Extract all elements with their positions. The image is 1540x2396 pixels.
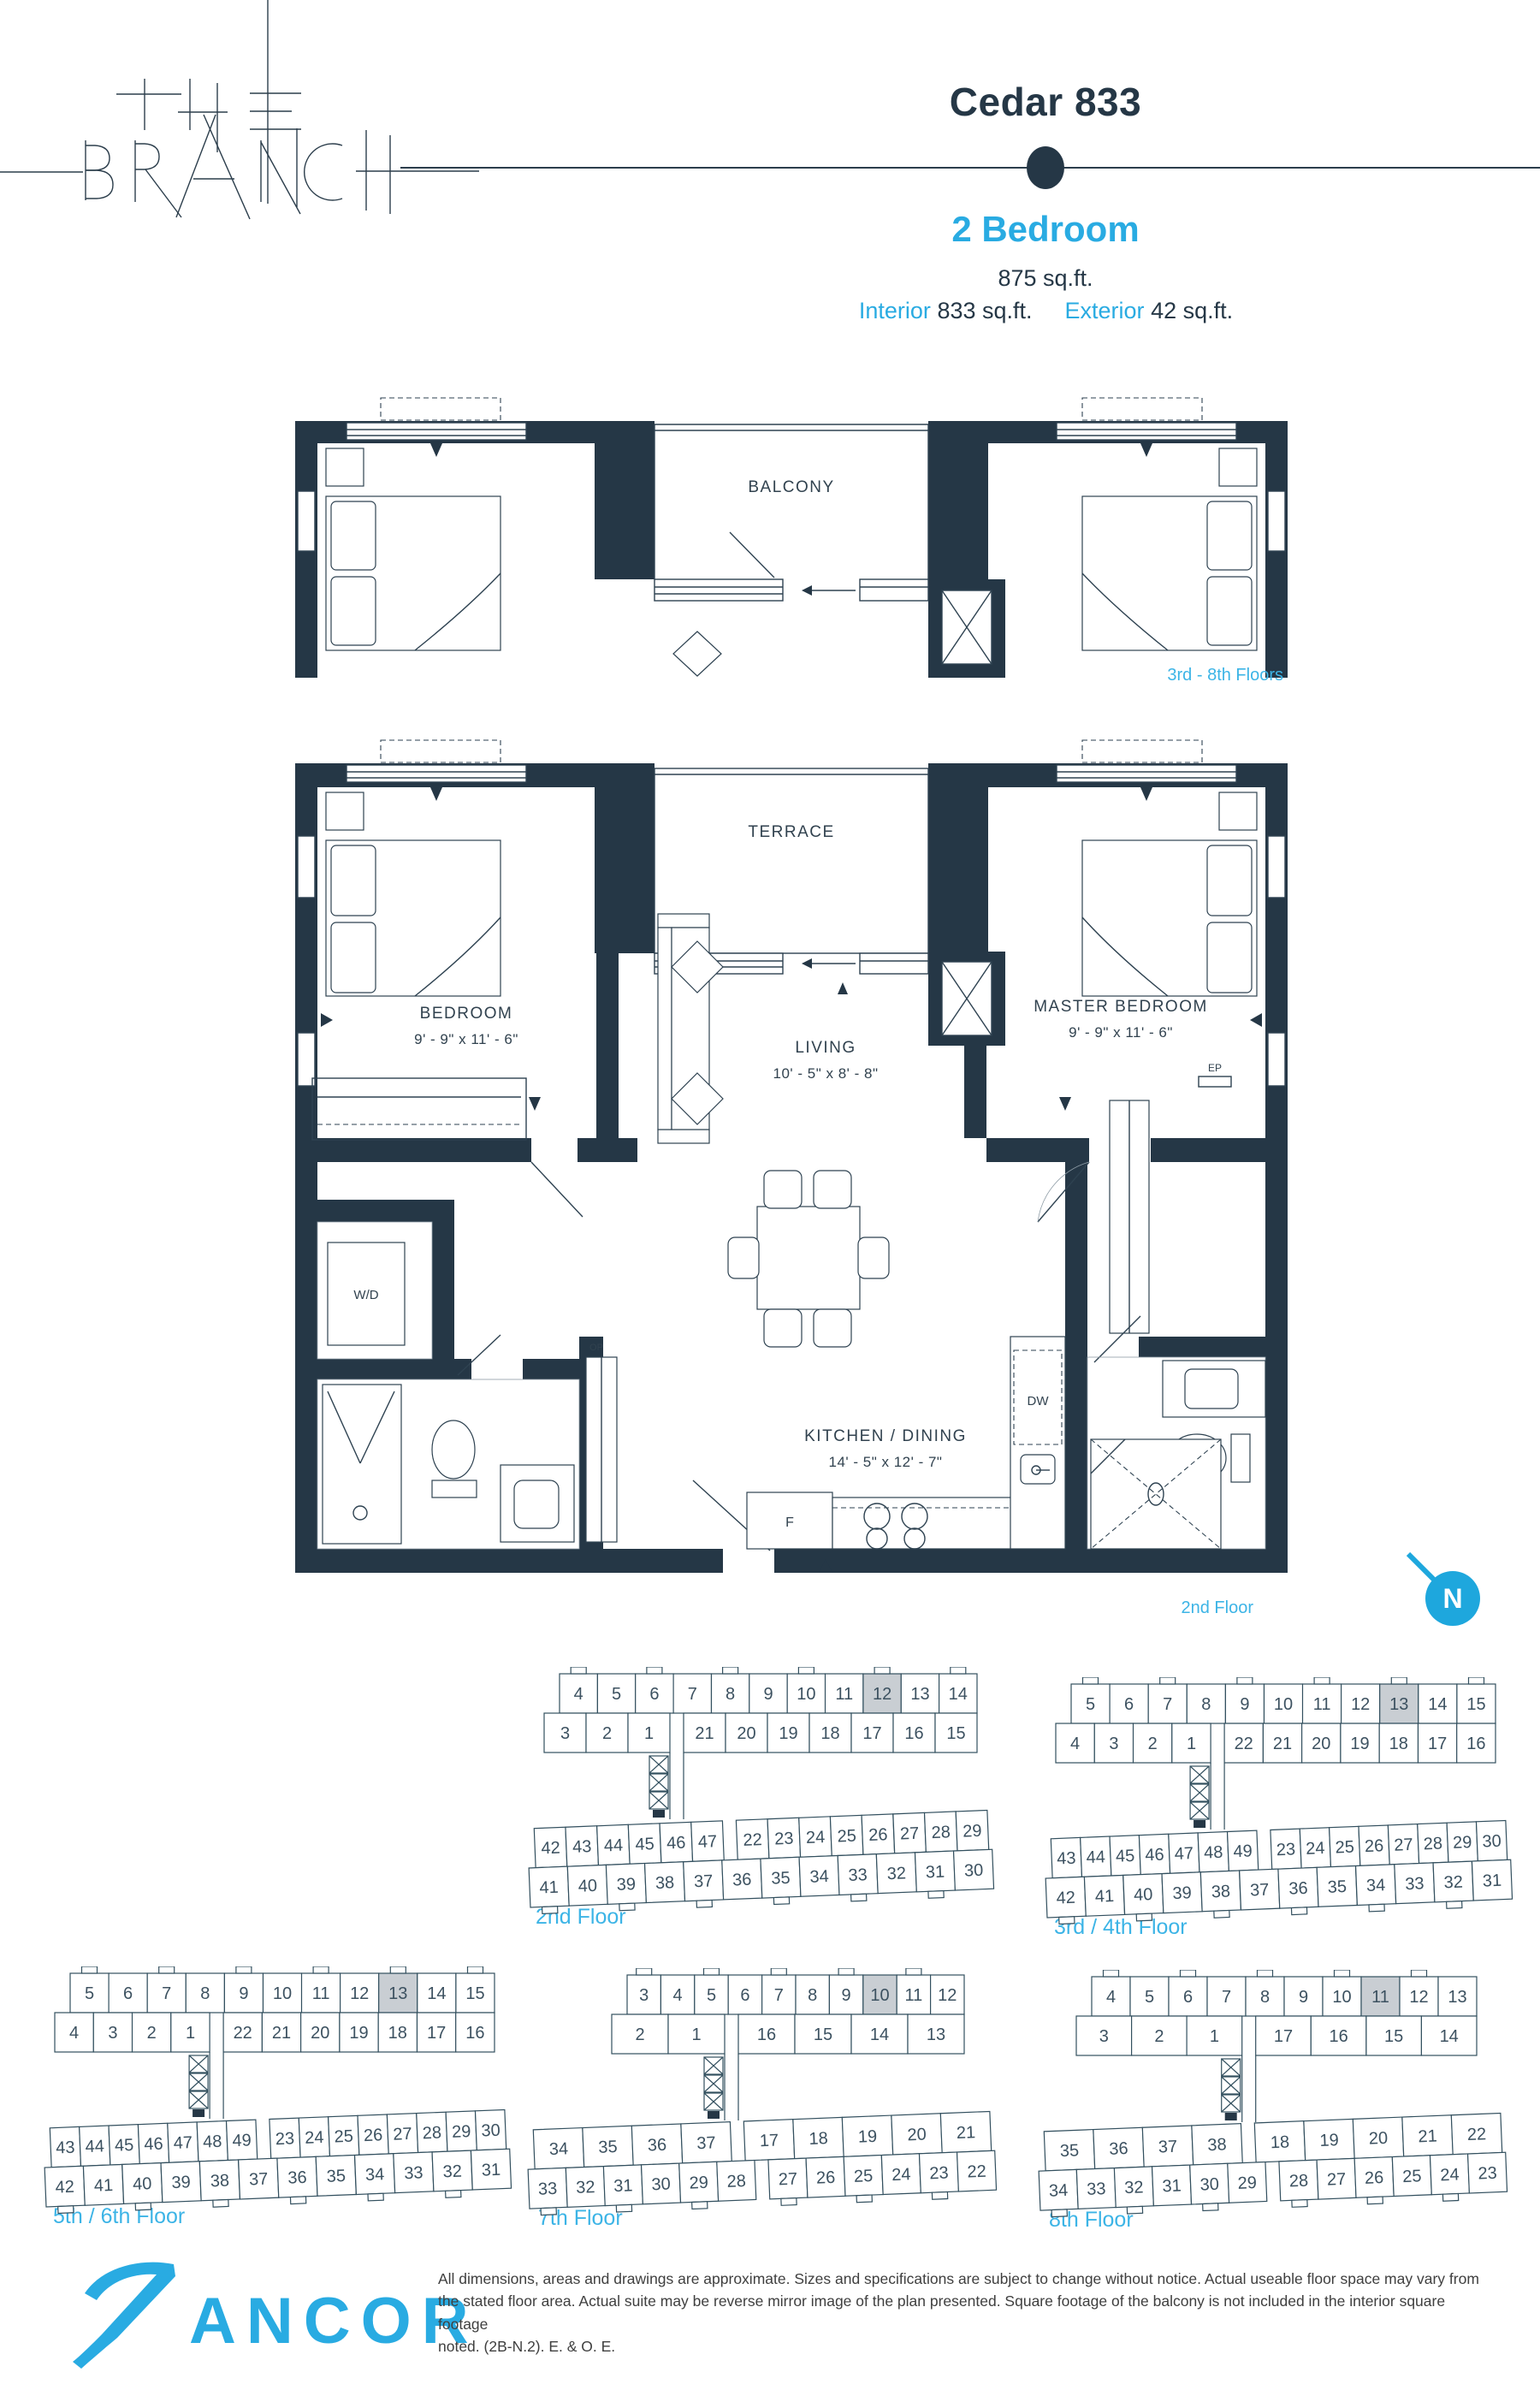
keyplan-unit-number: 23	[1478, 2164, 1497, 2184]
keyplan-balcony-tab	[290, 2197, 305, 2204]
keyplan-unit-number: 5	[85, 1984, 94, 2003]
keyplan-balcony-tab	[1335, 1970, 1350, 1977]
keyplan-unit-number: 37	[694, 1871, 714, 1891]
keyplan-unit-number: 34	[365, 2165, 385, 2185]
keyplan-unit-number: 23	[929, 2163, 949, 2183]
keyplan-unit-number: 4	[69, 2024, 79, 2043]
keyplan-unit-number: 6	[1183, 1988, 1193, 2007]
keyplan-unit-number: 45	[635, 1835, 654, 1854]
keyplan-unit-number: 42	[541, 1839, 560, 1859]
keyplan-unit-number: 43	[572, 1837, 592, 1857]
op-label: OP	[589, 1343, 603, 1353]
keyplan-unit-number: 34	[548, 2139, 568, 2159]
disclaimer-line: the stated floor area. Actual suite may …	[438, 2290, 1499, 2335]
keyplan-unit-number: 26	[1365, 2168, 1384, 2188]
washer-dryer-label: W/D	[353, 1288, 378, 1302]
keyplan-unit-number: 32	[442, 2162, 462, 2182]
keyplan-unit-number: 7	[1163, 1695, 1172, 1714]
keyplan-unit-number: 10	[273, 1984, 292, 2003]
keyplan-unit-number: 32	[1124, 2178, 1144, 2197]
keyplan-unit-number: 16	[757, 2025, 776, 2044]
main-plan-floor-label: 2nd Floor	[1069, 1598, 1253, 1618]
keyplan-balcony-tab	[135, 2203, 151, 2210]
keyplan-unit-number: 38	[1211, 1882, 1230, 1901]
keyplan-unit-number: 26	[364, 2126, 383, 2145]
keyplan-balcony-tab	[446, 2191, 461, 2198]
keyplan-unit-number: 41	[1094, 1887, 1114, 1907]
total-area: 875 sq.ft.	[874, 265, 1217, 292]
keyplan-balcony-tab	[542, 1907, 558, 1914]
keyplan-unit-number: 13	[388, 1984, 407, 2003]
keyplan-balcony-tab	[951, 1667, 966, 1674]
balcony-label: BALCONY	[748, 478, 834, 496]
keyplan-unit-number: 33	[538, 2180, 558, 2199]
master-bedroom-label: MASTER BEDROOM	[1034, 998, 1208, 1016]
keyplan-unit-number: 9	[1299, 1988, 1308, 2007]
keyplan-unit-number: 6	[1124, 1695, 1134, 1714]
keyplan-unit-number: 40	[133, 2174, 152, 2194]
keyplan-unit-number: 33	[1405, 1874, 1424, 1894]
keyplan-unit-number: 46	[1145, 1846, 1164, 1865]
keyplan-7th-floor: 7th Floor 345678910111221161514133435363…	[526, 1968, 1005, 2233]
bedroom-dims: 9' - 9" x 11' - 6"	[414, 1031, 518, 1047]
keyplan-unit-number: 17	[427, 2024, 446, 2043]
keyplan-unit-number: 15	[1384, 2027, 1403, 2046]
keyplan-unit-number: 1	[186, 2024, 195, 2043]
keyplan-unit-number: 5	[612, 1685, 621, 1704]
keyplan-unit-number: 47	[697, 1832, 717, 1852]
keyplan-unit-number: 8	[200, 1984, 210, 2003]
keyplan-unit-number: 45	[115, 2136, 134, 2156]
keyplan-balcony-tab	[213, 2199, 228, 2207]
keyplan-balcony-tab	[781, 2198, 797, 2206]
interior-label: Interior	[859, 298, 931, 323]
keyplan-unit-number: 2	[1154, 2027, 1164, 2046]
keyplan-unit-number: 25	[837, 1827, 856, 1847]
keyplan-unit-number: 4	[673, 1986, 683, 2005]
keyplan-unit-number: 22	[1466, 2125, 1486, 2144]
keyplan-balcony-tab	[874, 1667, 890, 1674]
keyplan-unit-number: 25	[1335, 1838, 1354, 1858]
keyplan-balcony-tab	[1059, 1917, 1075, 1925]
keyplan-balcony-tab	[1369, 1904, 1384, 1912]
keyplan-unit-number: 6	[123, 1984, 133, 2003]
keyplan-unit-number: 39	[1172, 1883, 1192, 1903]
keyplan-unit-number: 7	[774, 1986, 784, 2005]
keyplan-unit-number: 2	[1148, 1735, 1158, 1753]
keyplan-unit-number: 23	[275, 2129, 294, 2149]
keyplan-unit-number: 44	[603, 1836, 623, 1856]
keyplan-balcony-tab	[1160, 1677, 1176, 1684]
keyplan-unit-number: 21	[956, 2123, 975, 2143]
keyplan-unit-number: 18	[808, 2129, 828, 2149]
keyplan-unit-number: 35	[326, 2167, 346, 2186]
keyplan-unit-number: 37	[696, 2133, 716, 2153]
keyplan-unit-number: 17	[862, 1724, 881, 1743]
keyplan-unit-number: 16	[1329, 2027, 1347, 2046]
keyplan-balcony-tab	[773, 1897, 789, 1905]
keyplan-balcony-tab	[159, 1966, 175, 1973]
keyplan-unit-number: 31	[925, 1863, 945, 1883]
keyplan-unit-number: 6	[649, 1685, 659, 1704]
keyplan-balcony-tab	[313, 1966, 329, 1973]
keyplan-unit-number: 23	[774, 1830, 794, 1849]
keyplan-balcony-tab	[928, 1891, 944, 1899]
keyplan-unit-number: 1	[691, 2025, 701, 2044]
keyplan-unit-number: 15	[814, 2025, 832, 2044]
keyplan-balcony-tab	[468, 1966, 483, 1973]
keyplan-unit-number: 42	[55, 2178, 74, 2197]
keyplan-unit-number: 44	[85, 2137, 104, 2156]
keyplan-unit-number: 15	[1466, 1695, 1485, 1714]
keyplan-unit-number: 24	[806, 1828, 826, 1847]
keyplan-unit-number: 33	[848, 1865, 868, 1885]
keyplan-unit-number: 28	[931, 1823, 951, 1842]
keyplan-unit-number: 24	[305, 2128, 324, 2148]
keyplan-balcony-tab	[1291, 1907, 1306, 1915]
keyplan-balcony-tab	[696, 1900, 712, 1907]
keyplan-8th-floor: 8th Floor 456789101112133211716151435363…	[1037, 1970, 1516, 2235]
interior-value: 833 sq.ft.	[937, 298, 1032, 323]
keyplan-unit-number: 24	[891, 2165, 911, 2185]
keyplan-unit-number: 17	[1428, 1735, 1447, 1753]
keyplan-unit-number: 10	[1332, 1988, 1351, 2007]
keyplan-unit-number: 14	[1440, 2027, 1459, 2046]
header-rule-dot	[1027, 146, 1064, 189]
keyplan-unit-number: 9	[842, 1986, 851, 2005]
keyplan-stair-marker	[192, 2109, 204, 2117]
keyplan-stair-marker	[708, 2111, 720, 2119]
keyplan-unit-number: 44	[1086, 1847, 1105, 1867]
exterior-label: Exterior	[1065, 298, 1145, 323]
keyplan-unit-number: 12	[1351, 1695, 1370, 1714]
keyplan-unit-number: 1	[1210, 2027, 1219, 2046]
keyplan-unit-number: 29	[689, 2174, 708, 2193]
keyplan-unit-number: 20	[1368, 2129, 1388, 2149]
exterior-value: 42 sq.ft.	[1151, 298, 1233, 323]
keyplan-unit-number: 23	[1276, 1840, 1295, 1859]
keyplan-balcony-tab	[58, 2206, 74, 2214]
keyplan-unit-number: 2	[635, 2025, 644, 2044]
keyplan-balcony-tab	[1083, 1677, 1099, 1684]
keyplan-balcony-tab	[856, 2195, 872, 2203]
keyplan-unit-number: 7	[162, 1984, 171, 2003]
keyplan-unit-number: 14	[870, 2025, 889, 2044]
keyplan-unit-number: 49	[1233, 1841, 1253, 1861]
zancor-logo: ANCOR	[73, 2256, 475, 2384]
keyplan-unit-number: 49	[232, 2131, 252, 2150]
keyplan-unit-number: 35	[771, 1869, 791, 1889]
keyplan-unit-number: 34	[1049, 2181, 1069, 2201]
keyplan-2nd-floor: 2nd Floor 456789101112131432121201918171…	[524, 1667, 1003, 1932]
keyplan-unit-number: 4	[1106, 1988, 1116, 2007]
keyplan-unit-number: 48	[1204, 1843, 1223, 1863]
keyplan-balcony-tab	[1237, 1677, 1253, 1684]
keyplan-balcony-tab	[906, 1968, 921, 1975]
keyplan-unit-number: 36	[1288, 1879, 1308, 1899]
keyplan-unit-number: 15	[946, 1724, 965, 1743]
keyplan-balcony-tab	[851, 1894, 867, 1901]
keyplan-unit-number: 8	[1201, 1695, 1211, 1714]
keyplan-unit-number: 35	[598, 2138, 618, 2157]
keyplan-unit-number: 19	[779, 1724, 797, 1743]
keyplan-unit-number: 27	[900, 1824, 920, 1844]
keyplan-unit-number: 31	[1162, 2176, 1182, 2196]
keyplan-unit-number: 30	[964, 1861, 984, 1881]
keyplan-unit-number: 20	[737, 1724, 755, 1743]
keyplan-unit-number: 34	[1366, 1876, 1386, 1895]
keyplan-unit-number: 1	[1187, 1735, 1196, 1753]
keyplan-unit-number: 7	[688, 1685, 697, 1704]
keyplan-unit-number: 26	[1365, 1836, 1384, 1856]
keyplan-unit-number: 47	[1174, 1844, 1193, 1864]
keyplan-unit-number: 25	[854, 2167, 874, 2186]
keyplan-unit-number: 19	[349, 2024, 368, 2043]
keyplan-unit-number: 21	[272, 2024, 291, 2043]
keyplan-unit-number: 8	[808, 1986, 817, 2005]
keyplan-unit-number: 21	[695, 1724, 714, 1743]
keyplan-unit-number: 28	[1288, 2172, 1308, 2191]
keyplan-unit-number: 29	[962, 1822, 982, 1841]
keyplan-unit-number: 29	[1237, 2174, 1257, 2193]
keyplan-stair-marker	[653, 1810, 665, 1818]
keyplan-balcony-tab	[1314, 1677, 1330, 1684]
keyplan-balcony-tab	[619, 1903, 635, 1911]
keyplan-unit-number: 5	[1145, 1988, 1154, 2007]
keyplan-unit-number: 26	[816, 2168, 836, 2188]
keyplan-unit-number: 33	[404, 2163, 423, 2183]
keyplan-unit-number: 4	[1070, 1735, 1080, 1753]
keyplan-unit-number: 46	[144, 2135, 163, 2155]
keyplan-unit-number: 12	[873, 1685, 891, 1704]
keyplan-unit-number: 22	[234, 2024, 252, 2043]
keyplan-balcony-tab	[771, 1968, 786, 1975]
keyplan-unit-number: 17	[1274, 2027, 1293, 2046]
keyplan-balcony-tab	[1258, 1970, 1273, 1977]
keyplan-balcony-tab	[1367, 2197, 1383, 2204]
keyplan-balcony-tab	[616, 2204, 631, 2212]
keyplan-balcony-tab	[571, 1667, 586, 1674]
fridge-label: F	[785, 1515, 794, 1530]
keyplan-unit-number: 10	[870, 1986, 889, 2005]
keyplan-balcony-tab	[704, 1968, 720, 1975]
keyplan-unit-number: 48	[203, 2132, 222, 2152]
keyplan-unit-number: 19	[1350, 1735, 1369, 1753]
keyplan-unit-number: 32	[886, 1864, 906, 1883]
keyplan-unit-number: 22	[743, 1830, 762, 1850]
brochure-page: Cedar 833 2 Bedroom 875 sq.ft. Interior …	[0, 0, 1540, 2396]
keyplan-balcony-tab	[1447, 1901, 1462, 1909]
zancor-wordmark: ANCOR	[189, 2285, 475, 2357]
keyplan-balcony-tab	[236, 1966, 252, 1973]
keyplan-unit-number: 8	[1260, 1988, 1270, 2007]
keyplan-unit-number: 35	[1059, 2141, 1079, 2161]
keyplan-unit-number: 7	[1222, 1988, 1231, 2007]
keyplan-unit-number: 35	[1327, 1877, 1347, 1897]
keyplan-unit-number: 9	[763, 1685, 773, 1704]
keyplan-unit-number: 34	[809, 1867, 829, 1887]
main-floor-plan: TERRACE BEDROOM 9' - 9" x 11' - 6" MASTE…	[295, 738, 1288, 1593]
keyplan-balcony-tab	[838, 1968, 854, 1975]
keyplan-unit-number: 38	[655, 1873, 675, 1893]
keyplan-unit-number: 47	[173, 2133, 192, 2153]
keyplan-unit-number: 20	[1312, 1735, 1330, 1753]
keyplan-unit-number: 12	[350, 1984, 369, 2003]
keyplan-unit-number: 20	[311, 2024, 329, 2043]
keyplan-unit-number: 40	[1134, 1885, 1153, 1905]
upper-floor-plan: BALCONY	[295, 395, 1288, 678]
unit-type: 2 Bedroom	[874, 209, 1217, 250]
keyplan-balcony-tab	[692, 2202, 708, 2209]
keyplan-unit-number: 17	[759, 2131, 779, 2150]
keyplan-unit-number: 11	[905, 1986, 923, 2005]
keyplan-unit-number: 37	[1250, 1881, 1270, 1901]
keyplan-unit-number: 9	[1240, 1695, 1249, 1714]
disclaimer-text: All dimensions, areas and drawings are a…	[438, 2268, 1499, 2357]
keyplan-unit-number: 14	[1428, 1695, 1447, 1714]
keyplan-unit-number: 19	[1319, 2131, 1339, 2150]
keyplan-balcony-tab	[1051, 2209, 1067, 2217]
keyplan-unit-number: 40	[577, 1877, 597, 1896]
terrace-label: TERRACE	[748, 823, 834, 841]
keyplan-unit-number: 42	[1056, 1889, 1075, 1908]
keyplan-balcony-tab	[1214, 1910, 1229, 1918]
keyplan-balcony-tab	[647, 1667, 662, 1674]
dishwasher-label: DW	[1028, 1394, 1050, 1409]
keyplan-unit-number: 8	[726, 1685, 735, 1704]
keyplan-3rd-4th-floor: 3rd / 4th Floor 567891011121314154321222…	[1042, 1677, 1521, 1942]
keyplan-unit-number: 36	[647, 2136, 666, 2156]
living-label: LIVING	[795, 1039, 856, 1057]
keyplan-unit-number: 14	[427, 1984, 446, 2003]
keyplan-unit-number: 18	[388, 2024, 407, 2043]
keyplan-unit-number: 28	[1423, 1834, 1442, 1853]
keyplan-unit-number: 27	[778, 2170, 797, 2190]
keyplan-unit-number: 38	[210, 2171, 229, 2191]
keyplan-unit-number: 26	[868, 1825, 888, 1845]
keyplan-unit-number: 11	[312, 1984, 330, 2003]
north-letter: N	[1442, 1583, 1462, 1614]
keyplan-unit-number: 24	[1306, 1839, 1325, 1859]
keyplan-unit-number: 32	[576, 2178, 595, 2197]
keyplan-unit-number: 30	[1482, 1832, 1501, 1852]
keyplan-unit-number: 6	[740, 1986, 749, 2005]
keyplan-unit-number: 2	[147, 2024, 157, 2043]
keyplan-balcony-tab	[723, 1667, 738, 1674]
master-bedroom-dims: 9' - 9" x 11' - 6"	[1069, 1024, 1173, 1041]
keyplan-balcony-tab	[390, 1966, 406, 1973]
disclaimer-line: All dimensions, areas and drawings are a…	[438, 2268, 1499, 2290]
keyplan-unit-number: 27	[1327, 2170, 1347, 2190]
keyplan-balcony-tab	[1469, 1677, 1484, 1684]
keyplan-unit-number: 39	[616, 1875, 636, 1895]
keyplan-unit-number: 21	[1418, 2126, 1437, 2146]
keyplan-unit-number: 22	[1235, 1735, 1253, 1753]
keyplan-unit-number: 5	[707, 1986, 716, 2005]
keyplan-unit-number: 43	[1057, 1849, 1076, 1869]
keyplan-unit-number: 14	[949, 1685, 968, 1704]
keyplan-balcony-tab	[1127, 2206, 1142, 2214]
keyplan-balcony-tab	[798, 1667, 814, 1674]
keyplan-unit-number: 5	[1086, 1695, 1095, 1714]
disclaimer-line: noted. (2B-N.2). E. & O. E.	[438, 2335, 1499, 2357]
keyplan-balcony-tab	[82, 1966, 98, 1973]
keyplan-unit-number: 30	[651, 2174, 671, 2194]
keyplan-unit-number: 22	[967, 2162, 986, 2182]
keyplan-unit-number: 29	[1453, 1833, 1472, 1853]
keyplan-unit-number: 28	[422, 2123, 441, 2143]
keyplan-unit-number: 16	[904, 1724, 923, 1743]
keyplan-unit-number: 10	[797, 1685, 815, 1704]
area-breakdown: Interior 833 sq.ft. Exterior 42 sq.ft.	[817, 298, 1275, 324]
keyplan-unit-number: 41	[539, 1878, 559, 1898]
keyplan-unit-number: 15	[465, 1984, 484, 2003]
keyplan-unit-number: 12	[938, 1986, 957, 2005]
keyplan-unit-number: 10	[1274, 1695, 1293, 1714]
keyplan-unit-number: 30	[1199, 2175, 1219, 2195]
keyplan-unit-number: 33	[1087, 2180, 1106, 2199]
upper-plan-floors-label: 3rd - 8th Floors	[1069, 666, 1283, 685]
keyplan-stair-marker	[1225, 2113, 1237, 2120]
keyplan-unit-number: 18	[1270, 2132, 1289, 2152]
keyplan-unit-number: 25	[1402, 2167, 1422, 2186]
page-title: Cedar 833	[874, 79, 1217, 125]
keyplan-5th-6th-floor: 5th / 6th Floor 567891011121314154321222…	[41, 1966, 520, 2232]
keyplan-unit-number: 27	[393, 2125, 412, 2144]
keyplan-unit-number: 39	[171, 2173, 191, 2192]
keyplan-unit-number: 18	[820, 1724, 839, 1743]
keyplan-unit-number: 31	[1482, 1871, 1501, 1891]
keyplan-unit-number: 43	[56, 2138, 75, 2158]
keyplan-unit-number: 20	[907, 2125, 927, 2144]
the-branch-logo	[0, 0, 479, 222]
kitchen-label: KITCHEN / DINING	[804, 1427, 967, 1445]
keyplan-unit-number: 11	[1313, 1695, 1331, 1714]
keyplan-unit-number: 13	[927, 2025, 945, 2044]
keyplan-unit-number: 37	[1158, 2138, 1177, 2157]
exterior-area: Exterior 42 sq.ft.	[1065, 298, 1234, 324]
keyplan-balcony-tab	[1181, 1970, 1196, 1977]
keyplan-unit-number: 3	[639, 1986, 649, 2005]
keyplan-unit-number: 13	[1389, 1695, 1408, 1714]
bedroom-label: BEDROOM	[420, 1005, 513, 1023]
living-dims: 10' - 5" x 8' - 8"	[773, 1065, 879, 1082]
keyplan-unit-number: 30	[481, 2121, 500, 2141]
keyplan-unit-number: 3	[1099, 2027, 1109, 2046]
keyplan-balcony-tab	[637, 1968, 652, 1975]
north-arrow-icon: N	[1395, 1540, 1506, 1652]
keyplan-balcony-tab	[1203, 2203, 1218, 2211]
keyplan-unit-number: 4	[574, 1685, 583, 1704]
kitchen-dims: 14' - 5" x 12' - 7"	[829, 1454, 943, 1470]
keyplan-balcony-tab	[368, 2193, 383, 2201]
keyplan-unit-number: 1	[644, 1724, 654, 1743]
keyplan-unit-number: 9	[239, 1984, 248, 2003]
keyplan-unit-number: 16	[465, 2024, 484, 2043]
keyplan-balcony-tab	[1136, 1913, 1152, 1921]
keyplan-unit-number: 46	[666, 1834, 686, 1853]
keyplan-unit-number: 11	[1371, 1988, 1389, 2007]
keyplan-balcony-tab	[932, 2192, 947, 2200]
keyplan-unit-number: 31	[481, 2161, 500, 2180]
keyplan-balcony-tab	[1391, 1677, 1407, 1684]
keyplan-unit-number: 18	[1389, 1735, 1408, 1753]
keyplan-unit-number: 36	[1109, 2139, 1128, 2159]
keyplan-balcony-tab	[1412, 1970, 1427, 1977]
keyplan-balcony-tab	[541, 2208, 556, 2215]
keyplan-unit-number: 36	[287, 2168, 307, 2188]
keyplan-balcony-tab	[1104, 1970, 1119, 1977]
